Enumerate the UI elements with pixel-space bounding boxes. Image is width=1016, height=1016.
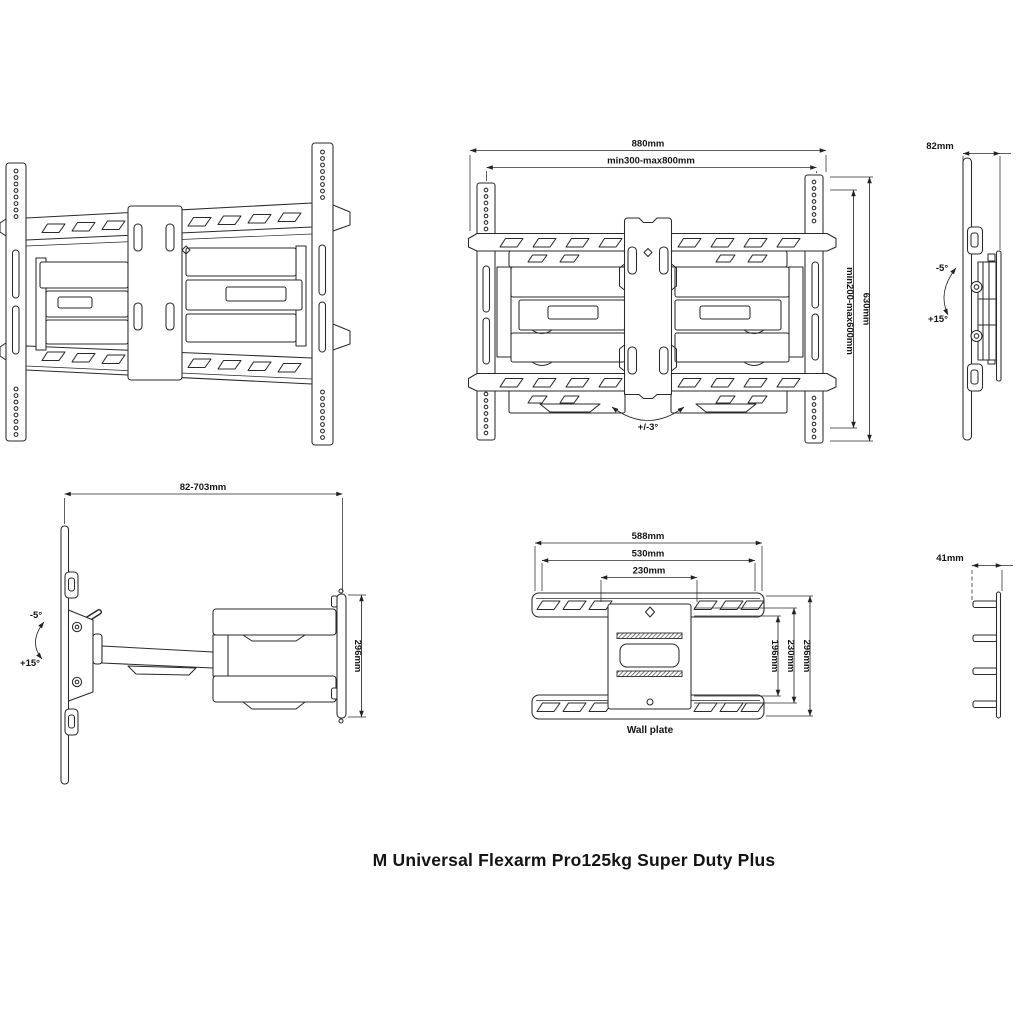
dim-wp-depth: 41mm [936, 553, 963, 564]
tilt-hinge [69, 610, 103, 701]
folded-arms-right [186, 246, 306, 346]
dim-swivel-range: +/-3° [638, 422, 659, 433]
tv-rail-left [477, 183, 495, 440]
dim-bracket-height: 296mm [352, 640, 363, 673]
view-perspective-front [0, 143, 350, 445]
wall-plate-body [608, 604, 691, 709]
tv-bracket-assembly [213, 589, 346, 723]
technical-drawing-sheet: 880mm min300-max800mm min200-max600mm 63… [0, 0, 1016, 1016]
dim-wp-inner-height: 196mm [769, 640, 780, 673]
dim-tilt-down: +15° [928, 314, 948, 325]
wall-hook-top [968, 227, 983, 254]
tv-plate [963, 158, 972, 440]
folded-arms-left [497, 267, 625, 366]
view-wall-plate-side: 41mm [936, 553, 1013, 718]
dim-tilt-down: +15° [20, 658, 40, 669]
product-title: M Universal Flexarm Pro125kg Super Duty … [373, 850, 776, 870]
dim-wp-height-total: 296mm [801, 640, 812, 673]
dim-wp-hole-width: 530mm [632, 549, 665, 560]
dim-width-total: 880mm [632, 139, 665, 150]
view-side-folded: 82mm -5° +15° [926, 141, 1011, 440]
wall-hook-bottom [968, 364, 983, 391]
dim-wall-distance-range: 82-703mm [180, 482, 226, 493]
dim-tilt-up: -5° [936, 263, 948, 274]
dim-wp-hole-height: 230mm [785, 640, 796, 673]
dimensions-wall-plate-side: 41mm [936, 553, 1013, 600]
wall-plate-label: Wall plate [627, 725, 674, 736]
view-front: 880mm min300-max800mm min200-max600mm 63… [469, 139, 874, 444]
folded-arm-block [971, 251, 1001, 381]
dim-vesa-height-range: min200-max600mm [844, 267, 855, 355]
view-wall-plate: 588mm 530mm 230mm 196mm 230mm 296mm Wall… [532, 531, 813, 736]
dim-depth-folded: 82mm [926, 141, 953, 152]
profile [973, 592, 1001, 718]
drawing-canvas: 880mm min300-max800mm min200-max600mm 63… [0, 0, 1016, 1016]
center-plate [620, 218, 677, 399]
tv-rail-right [312, 143, 350, 445]
view-side-extended: 82-703mm 296mm -5° +15° [20, 482, 366, 784]
extension-arm [102, 646, 213, 675]
tv-rail-left [0, 163, 26, 441]
center-plate [128, 206, 190, 380]
dim-tilt-up: -5° [30, 610, 42, 621]
dim-wp-center-width: 230mm [633, 566, 666, 577]
tv-rail-right [805, 175, 823, 443]
hatch-slot-bottom [617, 671, 682, 677]
hatch-slot-top [617, 633, 682, 639]
dim-wp-width-total: 588mm [632, 531, 665, 542]
dim-vesa-width-range: min300-max800mm [607, 156, 695, 167]
folded-arms-left [36, 258, 128, 350]
folded-arms-right [675, 267, 803, 366]
dim-height-total: 630mm [861, 293, 872, 326]
